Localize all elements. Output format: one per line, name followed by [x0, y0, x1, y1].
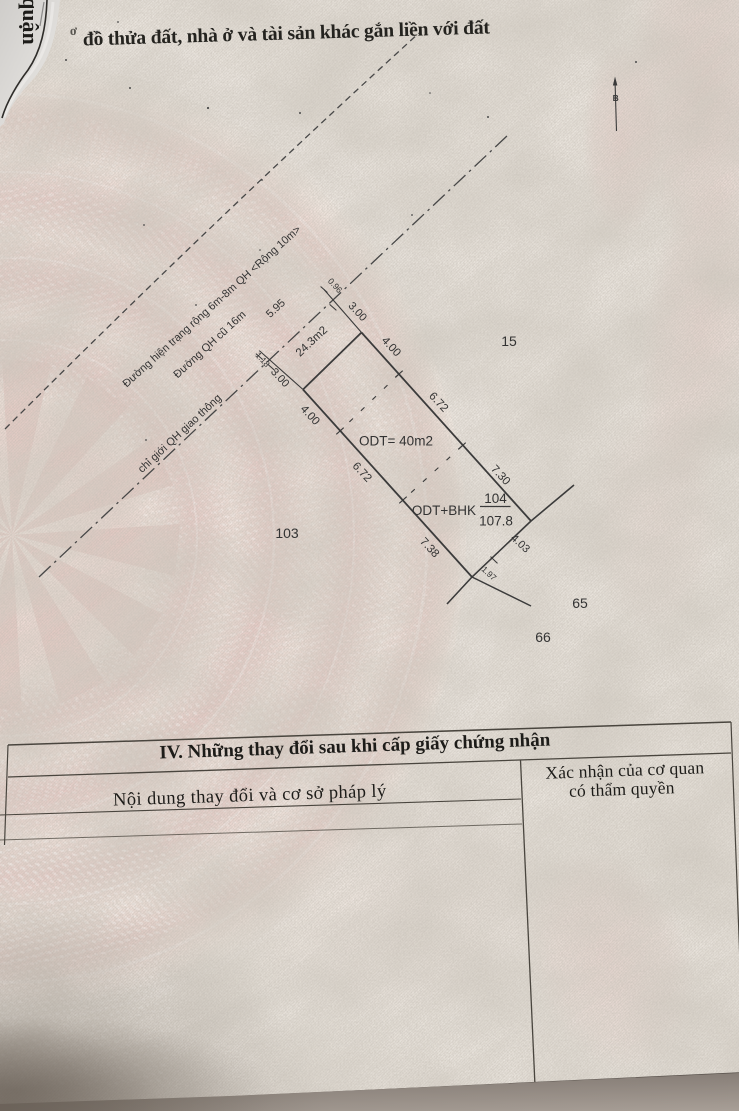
svg-text:B: B [613, 93, 619, 103]
svg-text:có thẩm quyền: có thẩm quyền [569, 777, 675, 801]
svg-text:104: 104 [484, 491, 507, 506]
svg-text:quận: quận [18, 0, 43, 45]
svg-text:103: 103 [275, 525, 299, 541]
svg-text:65: 65 [572, 595, 588, 611]
svg-text:ODT= 40m2: ODT= 40m2 [359, 434, 433, 449]
svg-text:66: 66 [535, 629, 551, 645]
svg-text:ODT+BHK: ODT+BHK [412, 503, 476, 518]
svg-text:15: 15 [501, 333, 517, 349]
svg-text:107.8: 107.8 [479, 514, 513, 529]
svg-text:ơ: ơ [70, 23, 78, 38]
